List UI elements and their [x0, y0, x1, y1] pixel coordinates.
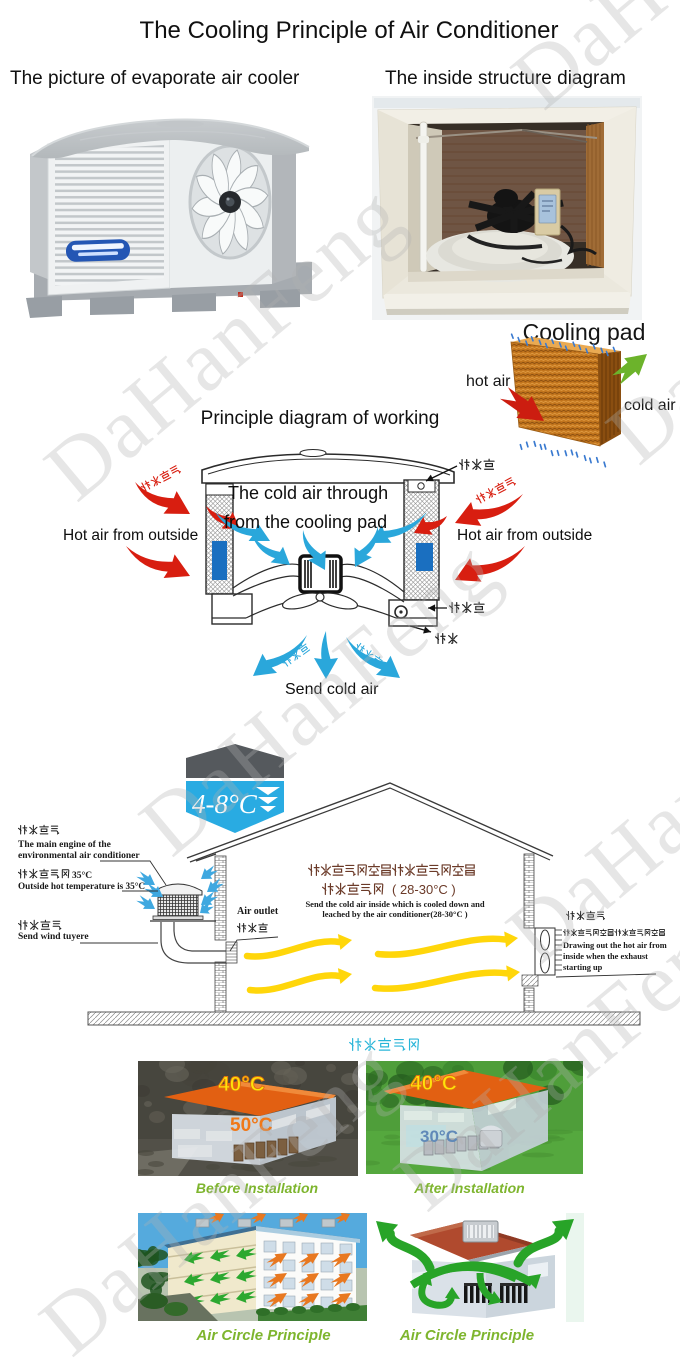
svg-text:Hot air from outside: Hot air from outside [457, 527, 592, 544]
svg-text:The cold air through: The cold air through [228, 483, 388, 503]
svg-text:Hot air from outside: Hot air from outside [63, 527, 198, 544]
svg-text:( 28-30°C ): ( 28-30°C ) [392, 882, 456, 897]
svg-text:Drawing out the hot air from: Drawing out the hot air from [563, 941, 667, 950]
svg-text:The main engine of the: The main engine of the [18, 840, 111, 850]
svg-text:Send cold air: Send cold air [285, 681, 379, 698]
svg-text:30°C: 30°C [420, 1127, 458, 1146]
svg-text:Outside hot temperature is 35°: Outside hot temperature is 35°C [18, 881, 145, 891]
svg-text:hot air: hot air [466, 373, 511, 390]
svg-text:leached by the air conditioner: leached by the air conditioner(28-30°C ) [322, 909, 467, 919]
svg-text:Air outlet: Air outlet [237, 906, 279, 917]
svg-text:starting up: starting up [563, 963, 603, 972]
svg-text:35°C: 35°C [72, 870, 92, 881]
svg-text:cold air: cold air [624, 397, 676, 414]
svg-text:Send the cold air inside which: Send the cold air inside which is cooled… [305, 899, 484, 909]
svg-text:40°C: 40°C [410, 1072, 457, 1095]
svg-text:40°C: 40°C [218, 1073, 265, 1096]
svg-text:environmental air conditioner: environmental air conditioner [18, 851, 140, 861]
svg-text:4-8°C: 4-8°C [192, 789, 258, 819]
svg-text:inside when the exhaust: inside when the exhaust [563, 952, 648, 961]
svg-text:50°C: 50°C [230, 1115, 273, 1136]
svg-text:from the cooling pad: from the cooling pad [224, 512, 387, 532]
svg-text:Send wind tuyere: Send wind tuyere [18, 932, 89, 942]
